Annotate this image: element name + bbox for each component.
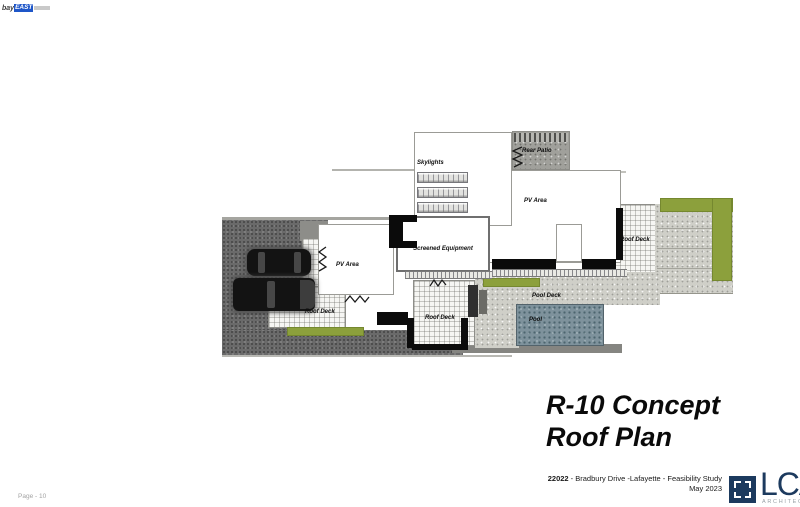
titleblock-date: May 2023 [548, 484, 722, 494]
skylight-strip [417, 172, 468, 183]
car-hood [300, 280, 315, 309]
wall-segment [377, 312, 408, 325]
project-description: - Bradbury Drive -Lafayette - Feasibilit… [569, 474, 722, 483]
roof-area-left [318, 224, 394, 295]
break-line-icon [344, 294, 370, 304]
planter [712, 198, 732, 281]
label-pv-area-upper: PV Area [524, 198, 547, 204]
site-line [332, 169, 414, 171]
project-number: 22022 [548, 474, 569, 483]
lca-logo-icon [729, 476, 756, 503]
page-number-label: Page - 10 [18, 493, 46, 500]
skylight-strip [417, 202, 468, 213]
skylight-strip [417, 187, 468, 198]
titleblock-text: 22022 - Bradbury Drive -Lafayette - Feas… [548, 474, 722, 494]
pool [516, 304, 604, 346]
label-pool: Pool [529, 317, 542, 323]
watermark-badge: EAST [14, 4, 33, 12]
label-pv-area-lower: PV Area [336, 262, 359, 268]
label-roof-deck-center: Roof Deck [425, 315, 455, 321]
patio-step-line [657, 248, 713, 249]
lca-logo-subtitle: ARCHITECTS [762, 499, 800, 505]
site-boundary-line [222, 355, 512, 357]
label-roof-deck-left: Roof Deck [305, 309, 335, 315]
sheet-page: bay EAST [0, 0, 800, 507]
hatched-wall [405, 271, 492, 279]
car-rear-window [294, 252, 301, 273]
patio-step-line [657, 268, 713, 269]
watermark-prefix: bay [2, 5, 14, 12]
wall-segment [598, 260, 616, 267]
patio-step-line [657, 228, 713, 229]
label-screened-equipment: Screened Equipment [398, 246, 488, 252]
label-roof-deck-right: Roof Deck [620, 237, 650, 243]
wall-segment [616, 208, 623, 260]
lca-logo-bar [741, 478, 745, 501]
hatched-wall [492, 269, 627, 277]
break-line-icon [316, 246, 328, 272]
sheet-title-line1: R-10 Concept [546, 389, 720, 421]
watermark-tail [34, 6, 50, 10]
wall-segment [412, 344, 465, 350]
car-windshield [258, 252, 265, 273]
label-pool-deck: Pool Deck [532, 293, 561, 299]
chimney [556, 224, 582, 262]
sheet-title: R-10 Concept Roof Plan [546, 389, 720, 454]
label-rear-patio: Rear Patio [522, 148, 552, 154]
break-line-icon [429, 278, 447, 288]
rear-patio-trellis [514, 133, 568, 142]
lca-logo-text: LCA [760, 468, 800, 500]
titleblock-project-line: 22022 - Bradbury Drive -Lafayette - Feas… [548, 474, 722, 484]
stair-dark [468, 285, 478, 317]
planter [483, 278, 540, 287]
watermark-logo: bay EAST [2, 3, 50, 13]
label-skylights: Skylights [417, 160, 444, 166]
sheet-title-line2: Roof Plan [546, 421, 720, 453]
stair-light [479, 290, 487, 314]
car-windshield [267, 281, 275, 308]
planter [287, 327, 364, 336]
wall-segment [492, 259, 556, 269]
parked-car-sedan [247, 249, 311, 276]
parked-car-truck [233, 278, 315, 311]
